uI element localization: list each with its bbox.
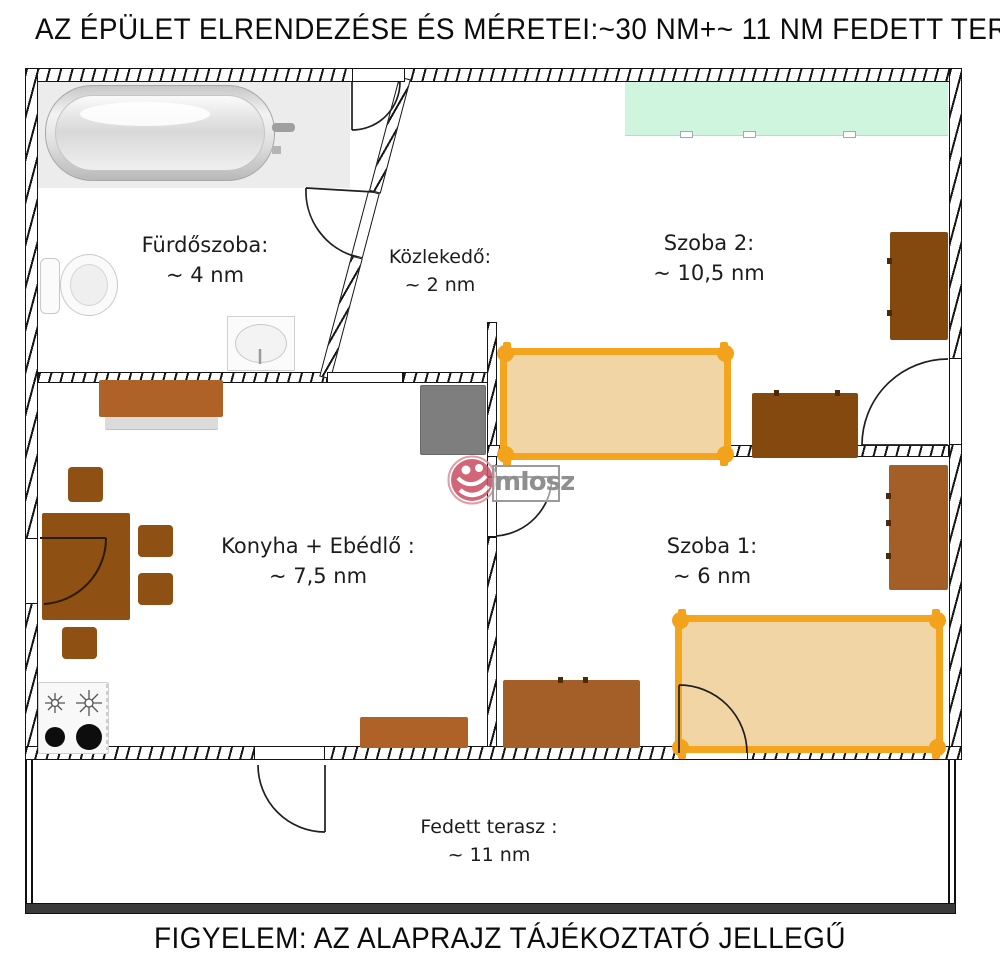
stove (38, 682, 109, 754)
room-size: ~ 4 nm (142, 260, 269, 290)
bed-szoba2 (500, 348, 731, 460)
door-opening-bathroom (351, 190, 380, 258)
terrace-wall-left (25, 760, 33, 908)
bathtub-faucet (272, 123, 295, 132)
chair (138, 525, 173, 557)
kitchen-sideboard (99, 380, 223, 417)
wall-left (25, 68, 38, 760)
sink (227, 316, 295, 371)
room-label-kozlekedo: Közlekedő: ~ 2 nm (389, 243, 491, 299)
door-opening-szoba2-right (949, 358, 962, 445)
sink-basin (235, 324, 287, 363)
chair (62, 627, 97, 659)
room-label-szoba2: Szoba 2: ~ 10,5 nm (653, 228, 764, 288)
floor-plan-page: AZ ÉPÜLET ELRENDEZÉSE ÉS MÉRETEI:~30 NM+… (0, 0, 1000, 964)
room-size: ~ 2 nm (389, 271, 491, 299)
room-label-terasz: Fedett terasz : ~ 11 nm (420, 813, 557, 869)
wardrobe-green (625, 82, 948, 136)
terrace-wall-right (948, 760, 956, 908)
door-arc-szoba2-right (862, 359, 948, 445)
door-arc-terrace (258, 765, 325, 832)
room-size: ~ 6 nm (667, 561, 758, 591)
room-label-konyha: Konyha + Ebédlő : ~ 7,5 nm (221, 531, 415, 591)
toilet-bowl (60, 254, 118, 316)
wardrobe-handle (680, 131, 693, 138)
terrace-wall-bottom (25, 903, 956, 914)
page-title: AZ ÉPÜLET ELRENDEZÉSE ÉS MÉRETEI:~30 NM+… (35, 13, 965, 47)
room-size: ~ 11 nm (420, 841, 557, 869)
fridge (420, 385, 486, 455)
door-opening-kitchen-left (25, 538, 38, 604)
dining-table (42, 513, 130, 620)
room-size: ~ 10,5 nm (653, 258, 764, 288)
disclaimer-text: FIGYELEM: AZ ALAPRAJZ TÁJÉKOZTATÓ JELLEG… (35, 922, 965, 956)
bathtub (45, 85, 275, 181)
toilet-seat (70, 264, 108, 306)
room-name: Szoba 1: (667, 531, 758, 561)
watermark-text: mIosz (492, 465, 560, 502)
door-opening-top-wall (352, 68, 405, 82)
wall-hall-bottom (403, 372, 490, 383)
doorway-hall-kitchen (327, 372, 403, 383)
dresser-szoba2-wall (890, 232, 948, 340)
room-label-furdoszoba: Fürdőszoba: ~ 4 nm (142, 230, 269, 290)
room-name: Konyha + Ebédlő : (221, 531, 415, 561)
dresser-szoba2-bedside (752, 393, 858, 458)
kitchen-cabinet (360, 717, 468, 748)
toilet-tank (40, 258, 60, 314)
door-opening-terrace (254, 746, 325, 760)
wardrobe-handle (843, 131, 856, 138)
chair (138, 573, 173, 605)
dresser-szoba1-left (503, 680, 640, 748)
bed-szoba1 (675, 615, 943, 753)
bathtub-highlight (80, 102, 210, 126)
room-name: Szoba 2: (653, 228, 764, 258)
room-name: Fürdőszoba: (142, 230, 269, 260)
room-label-szoba1: Szoba 1: ~ 6 nm (667, 531, 758, 591)
wall-diagonal-lower (319, 255, 363, 379)
kitchen-sideboard-shadow (105, 417, 218, 430)
wall-center-vertical-lower (487, 537, 497, 747)
room-name: Közlekedő: (389, 243, 491, 271)
bathtub-drain (272, 146, 281, 154)
dresser-szoba1-wall (889, 465, 948, 590)
room-name: Fedett terasz : (420, 813, 557, 841)
chair (68, 467, 103, 502)
wall-top (25, 68, 962, 82)
room-size: ~ 7,5 nm (221, 561, 415, 591)
wardrobe-handle (743, 131, 756, 138)
wall-diagonal-upper (369, 76, 411, 193)
